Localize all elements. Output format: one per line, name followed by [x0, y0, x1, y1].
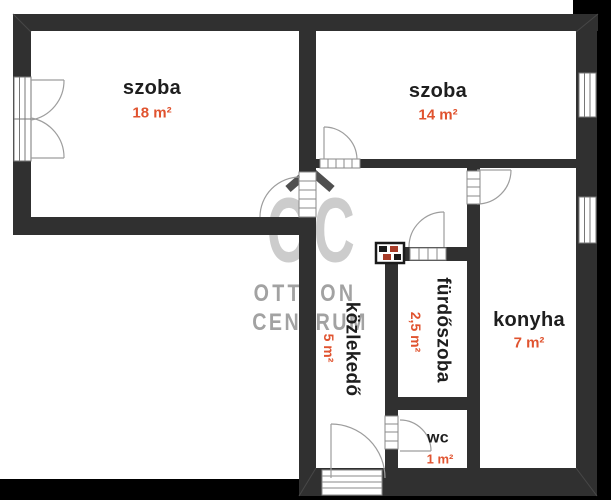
label-szoba14: szoba — [409, 80, 468, 102]
label-szoba18: szoba — [123, 77, 182, 99]
chimney-block — [376, 243, 404, 263]
chimney-hatch-2 — [390, 246, 398, 252]
floorplan-drawing: OC OTTHON CENTRUM — [0, 0, 611, 500]
area-kozlekedo: 5 m² — [321, 334, 337, 363]
area-konyha: 7 m² — [514, 335, 545, 352]
threshold-wc-door — [385, 416, 398, 449]
chimney-hatch-1 — [379, 246, 387, 252]
area-furdoszoba: 2,5 m² — [408, 312, 424, 353]
threshold-konyha-door — [467, 171, 480, 204]
window-szoba18-icon — [14, 77, 31, 161]
outside-band-right — [597, 0, 611, 500]
label-wc: wc — [426, 430, 449, 447]
outside-band-top-right — [573, 0, 611, 15]
window-konyha-icon — [579, 197, 596, 243]
area-szoba18: 18 m² — [132, 105, 171, 122]
label-konyha: konyha — [493, 309, 565, 331]
area-wc: 1 m² — [427, 452, 454, 467]
wall-szoba18-bottom — [13, 217, 316, 235]
chimney-hatch-4 — [394, 254, 401, 260]
wall-central-vertical — [299, 14, 316, 496]
threshold-szoba14-door — [320, 159, 360, 168]
wall-konyha-left — [467, 159, 480, 468]
threshold-szoba18-door — [299, 172, 316, 217]
chimney-hatch-3 — [383, 254, 391, 260]
threshold-furdo-door — [410, 248, 446, 260]
floorplan-canvas: OC OTTHON CENTRUM — [0, 0, 611, 500]
window-szoba14-icon — [579, 73, 596, 117]
wall-furdo-wc-divider — [385, 397, 480, 410]
label-furdoszoba: fürdőszoba — [433, 277, 454, 383]
label-kozlekedo: közlekedő — [342, 302, 363, 397]
area-szoba14: 14 m² — [418, 107, 457, 124]
